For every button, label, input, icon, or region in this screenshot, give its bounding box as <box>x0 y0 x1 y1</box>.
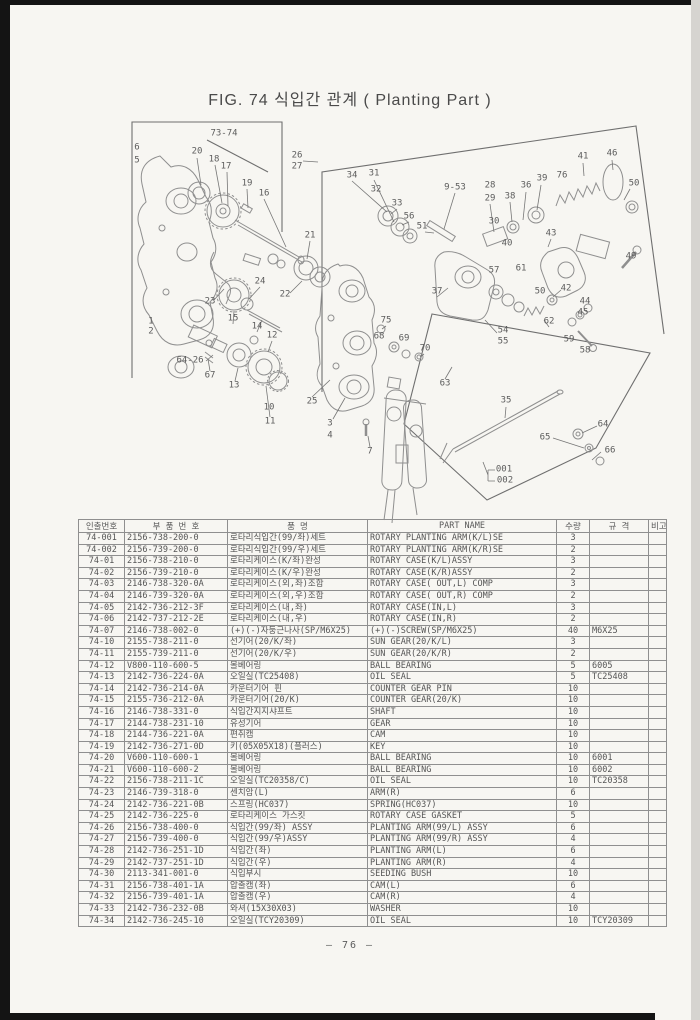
cell: 5 <box>557 672 590 684</box>
cell: GEAR <box>368 718 557 730</box>
cell: TCY20309 <box>590 915 649 927</box>
callout-label: 76 <box>557 172 568 181</box>
callout-label: 1 <box>148 318 153 327</box>
cell: ROTARY CASE( OUT,R) COMP <box>368 590 557 602</box>
callout-label: 10 <box>264 404 275 413</box>
cell: KEY <box>368 741 557 753</box>
cell: OIL SEAL <box>368 672 557 684</box>
cell: 74-22 <box>79 776 125 788</box>
cell: 6 <box>557 880 590 892</box>
cell: 로타리식입간(99/우)세트 <box>228 544 368 556</box>
cell: 6 <box>557 788 590 800</box>
callout-label: 45 <box>578 309 589 318</box>
cell <box>590 683 649 695</box>
table-row: 74-232146-739-318-0센치암(L)ARM(R)6 <box>79 788 667 800</box>
cell <box>590 706 649 718</box>
cell: 2 <box>557 590 590 602</box>
callout-label: 50 <box>535 288 546 297</box>
col-header: 규 격 <box>590 520 649 533</box>
cell: 로타리케이스(K/우)완성 <box>228 567 368 579</box>
cell: 2142-736-245-10 <box>125 915 228 927</box>
cell <box>649 857 667 869</box>
callout-label: 30 <box>489 218 500 227</box>
cell: 74-02 <box>79 567 125 579</box>
cell: 2156-739-210-0 <box>125 567 228 579</box>
cell: 74-29 <box>79 857 125 869</box>
callout-label: 62 <box>544 318 555 327</box>
callout-label: 6 <box>134 144 139 153</box>
cell <box>649 753 667 765</box>
callout-label: 31 <box>369 170 380 179</box>
cell: 74-01 <box>79 556 125 568</box>
cell: ROTARY CASE GASKET <box>368 811 557 823</box>
callout-label: 40 <box>502 240 513 249</box>
cell <box>649 637 667 649</box>
callout-label: 4 <box>327 432 332 441</box>
cell: SHAFT <box>368 706 557 718</box>
page-number: — 76 — <box>0 940 700 951</box>
cell: 로타리케이스(내,좌) <box>228 602 368 614</box>
table-row: 74-342142-736-245-10오일실(TCY20309)OIL SEA… <box>79 915 667 927</box>
cell: 10 <box>557 904 590 916</box>
cell: 10 <box>557 799 590 811</box>
callout-label: 21 <box>305 232 316 241</box>
callout-label: 34 <box>347 172 358 181</box>
cell <box>590 637 649 649</box>
cell: 2144-738-231-10 <box>125 718 228 730</box>
callout-label: 73-74 <box>210 130 237 139</box>
callout-label: 44 <box>580 298 591 307</box>
callout-label: 69 <box>399 335 410 344</box>
cell: 10 <box>557 764 590 776</box>
cell: 2142-736-212-3F <box>125 602 228 614</box>
cell: OIL SEAL <box>368 915 557 927</box>
cell: 2142-736-221-0B <box>125 799 228 811</box>
cell: 74-19 <box>79 741 125 753</box>
table-row: 74-21V600-110-600-2볼베어링BALL BEARING10600… <box>79 764 667 776</box>
cell: 2 <box>557 544 590 556</box>
cell <box>649 590 667 602</box>
cell: PLANTING ARM(L) <box>368 846 557 858</box>
table-row: 74-0012156-738-200-0로타리식입간(99/좌)세트ROTARY… <box>79 533 667 545</box>
cell: 10 <box>557 741 590 753</box>
table-header-row: 인출번호부 품 번 호품 명PART NAME수량규 격비고 <box>79 520 667 533</box>
cell: 74-23 <box>79 788 125 800</box>
cell: 74-04 <box>79 590 125 602</box>
cell <box>649 672 667 684</box>
cell: BALL BEARING <box>368 753 557 765</box>
cell: PLANTING ARM(99/R) ASSY <box>368 834 557 846</box>
cell: 로타리식입간(99/좌)세트 <box>228 533 368 545</box>
cell: V800-110-600-5 <box>125 660 228 672</box>
cell <box>649 834 667 846</box>
cell: 4 <box>557 857 590 869</box>
table-row: 74-312156-738-401-1A압출캠(좌)CAM(L)6 <box>79 880 667 892</box>
cell: 74-34 <box>79 915 125 927</box>
cell: 74-28 <box>79 846 125 858</box>
cell: 편취캠 <box>228 730 368 742</box>
cell <box>590 602 649 614</box>
cell: 3 <box>557 637 590 649</box>
cell: V600-110-600-2 <box>125 764 228 776</box>
callout-label: 28 <box>485 182 496 191</box>
cell <box>590 822 649 834</box>
callout-label: 61 <box>516 265 527 274</box>
cell: 압출캠(우) <box>228 892 368 904</box>
cell: V600-110-600-1 <box>125 753 228 765</box>
table-row: 74-12V800-110-600-5볼베어링BALL BEARING56005 <box>79 660 667 672</box>
cell: 4 <box>557 834 590 846</box>
cell: 식입간(우) <box>228 857 368 869</box>
cell: 10 <box>557 776 590 788</box>
cell: 2113-341-001-0 <box>125 869 228 881</box>
parts-table: 인출번호부 품 번 호품 명PART NAME수량규 격비고 74-001215… <box>78 519 667 927</box>
table-row: 74-272156-739-400-0식입간(99/우)ASSYPLANTING… <box>79 834 667 846</box>
cell <box>649 706 667 718</box>
cell: OIL SEAL <box>368 776 557 788</box>
cell: 5 <box>557 811 590 823</box>
callout-label: 75 <box>381 317 392 326</box>
cell: 74-25 <box>79 811 125 823</box>
cell: 로타리케이스(외,좌)조합 <box>228 579 368 591</box>
cell: 2155-738-211-0 <box>125 637 228 649</box>
callout-label: 23 <box>205 298 216 307</box>
callout-label: 29 <box>485 195 496 204</box>
cell: PLANTING ARM(R) <box>368 857 557 869</box>
callout-label: 38 <box>505 193 516 202</box>
table-row: 74-222156-738-211-1C오일실(TC20358/C)OIL SE… <box>79 776 667 788</box>
cell: 키(05X05X18)(플러스) <box>228 741 368 753</box>
cell <box>590 614 649 626</box>
cell: 3 <box>557 533 590 545</box>
callout-label: 5 <box>134 157 139 166</box>
callout-label: 42 <box>561 285 572 294</box>
cell: (+)(-)SCREW(SP/M6X25) <box>368 625 557 637</box>
cell: SUN GEAR(20/K/L) <box>368 637 557 649</box>
table-row: 74-132142-736-224-0A오일실(TC25408)OIL SEAL… <box>79 672 667 684</box>
cell: ROTARY CASE(IN,L) <box>368 602 557 614</box>
cell: 74-18 <box>79 730 125 742</box>
callout-label: 15 <box>228 315 239 324</box>
cell: 10 <box>557 683 590 695</box>
cell <box>590 869 649 881</box>
cell: 10 <box>557 753 590 765</box>
cell: PLANTING ARM(99/L) ASSY <box>368 822 557 834</box>
cell: 2155-739-211-0 <box>125 648 228 660</box>
cell <box>649 602 667 614</box>
cell: 10 <box>557 730 590 742</box>
cell: 2 <box>557 614 590 626</box>
cell: ARM(R) <box>368 788 557 800</box>
cell: COUNTER GEAR(20/K) <box>368 695 557 707</box>
cell <box>590 846 649 858</box>
callout-label: 58 <box>580 347 591 356</box>
cell: 선기어(20/K/우) <box>228 648 368 660</box>
callout-label: 56 <box>404 213 415 222</box>
cell <box>649 695 667 707</box>
cell: 2156-738-400-0 <box>125 822 228 834</box>
cell: 2144-736-221-0A <box>125 730 228 742</box>
cell <box>649 614 667 626</box>
callout-label: 37 <box>432 288 443 297</box>
cell: 2146-739-320-0A <box>125 590 228 602</box>
callout-label: 68 <box>374 333 385 342</box>
cell: 식입간(99/좌) ASSY <box>228 822 368 834</box>
cell <box>590 556 649 568</box>
cell <box>590 544 649 556</box>
cell: 오일실(TC20358/C) <box>228 776 368 788</box>
cell: 74-03 <box>79 579 125 591</box>
callout-label: 13 <box>229 382 240 391</box>
callout-label: 20 <box>192 148 203 157</box>
callout-label: 51 <box>417 223 428 232</box>
cell: 로타리케이스 가스킷 <box>228 811 368 823</box>
cell <box>649 788 667 800</box>
cell: 카운터기어 핀 <box>228 683 368 695</box>
table-row: 74-062142-737-212-2E로타리케이스(내,우)ROTARY CA… <box>79 614 667 626</box>
cell: 74-21 <box>79 764 125 776</box>
cell: 74-05 <box>79 602 125 614</box>
cell <box>649 718 667 730</box>
callout-label: 50 <box>629 180 640 189</box>
callout-label: 22 <box>280 291 291 300</box>
table-row: 74-052142-736-212-3F로타리케이스(내,좌)ROTARY CA… <box>79 602 667 614</box>
table-row: 74-292142-737-251-1D식입간(우)PLANTING ARM(R… <box>79 857 667 869</box>
table-row: 74-182144-736-221-0A편취캠CAM10 <box>79 730 667 742</box>
cell: 카운터기어(20/K) <box>228 695 368 707</box>
cell <box>590 741 649 753</box>
cell: 74-30 <box>79 869 125 881</box>
table-row: 74-152155-736-212-0A카운터기어(20/K)COUNTER G… <box>79 695 667 707</box>
cell: M6X25 <box>590 625 649 637</box>
cell <box>649 764 667 776</box>
cell <box>649 869 667 881</box>
cell: COUNTER GEAR PIN <box>368 683 557 695</box>
cell <box>590 834 649 846</box>
cell: 식입간지지샤프트 <box>228 706 368 718</box>
cell: 4 <box>557 892 590 904</box>
cell <box>590 904 649 916</box>
cell: 3 <box>557 579 590 591</box>
callout-label: 7 <box>367 448 372 457</box>
callout-label: 12 <box>267 332 278 341</box>
cell: 6001 <box>590 753 649 765</box>
cell: 74-12 <box>79 660 125 672</box>
cell: 10 <box>557 869 590 881</box>
cell: 2156-739-400-0 <box>125 834 228 846</box>
cell: ROTARY CASE( OUT,L) COMP <box>368 579 557 591</box>
cell: 74-001 <box>79 533 125 545</box>
cell: 로타리케이스(내,우) <box>228 614 368 626</box>
cell: 압출캠(좌) <box>228 880 368 892</box>
cell <box>649 544 667 556</box>
cell: 10 <box>557 706 590 718</box>
callout-label: 3 <box>327 420 332 429</box>
cell <box>649 880 667 892</box>
cell: 볼베어링 <box>228 660 368 672</box>
cell: BALL BEARING <box>368 660 557 672</box>
callout-label: 17 <box>221 163 232 172</box>
callout-label: 18 <box>209 156 220 165</box>
callout-label: 64-26 <box>176 357 203 366</box>
callout-label: 41 <box>578 153 589 162</box>
cell: 식입부시 <box>228 869 368 881</box>
cell <box>590 718 649 730</box>
cell: 2142-736-232-0B <box>125 904 228 916</box>
table-row: 74-322156-739-401-1A압출캠(우)CAM(R)4 <box>79 892 667 904</box>
cell <box>590 892 649 904</box>
callout-label: 32 <box>371 186 382 195</box>
cell <box>649 683 667 695</box>
cell: 2 <box>557 567 590 579</box>
cell <box>649 811 667 823</box>
col-header: 부 품 번 호 <box>125 520 228 533</box>
table-body: 74-0012156-738-200-0로타리식입간(99/좌)세트ROTARY… <box>79 533 667 927</box>
callout-label: 59 <box>564 336 575 345</box>
cell <box>649 799 667 811</box>
cell: 74-14 <box>79 683 125 695</box>
cell <box>649 625 667 637</box>
table-row: 74-072146-738-002-0(+)(-)자둥근나사(SP/M6X25)… <box>79 625 667 637</box>
cell: 74-07 <box>79 625 125 637</box>
exploded-diagram: 73-7465201817191626273431329-53282938363… <box>0 108 700 523</box>
table-row: 74-162146-738-331-0식입간지지샤프트SHAFT10 <box>79 706 667 718</box>
table-row: 74-282142-736-251-1D식입간(좌)PLANTING ARM(L… <box>79 846 667 858</box>
cell <box>649 741 667 753</box>
callout-label: 9-53 <box>444 184 466 193</box>
cell <box>590 533 649 545</box>
cell: 2 <box>557 648 590 660</box>
callout-label: 27 <box>292 163 303 172</box>
callout-label: 63 <box>440 380 451 389</box>
cell: 74-27 <box>79 834 125 846</box>
callout-label: 35 <box>501 397 512 406</box>
table-row: 74-332142-736-232-0B와셔(15X30X03)WASHER10 <box>79 904 667 916</box>
callout-label: 2 <box>148 328 153 337</box>
cell: 볼베어링 <box>228 764 368 776</box>
table-row: 74-242142-736-221-0B스프링(HC037)SPRING(HC0… <box>79 799 667 811</box>
cell <box>649 776 667 788</box>
cell <box>590 799 649 811</box>
cell: WASHER <box>368 904 557 916</box>
cell: 오일실(TC25408) <box>228 672 368 684</box>
callout-label: 70 <box>420 345 431 354</box>
cell: SEEDING BUSH <box>368 869 557 881</box>
cell: 74-17 <box>79 718 125 730</box>
callout-label: 46 <box>607 150 618 159</box>
callout-label: 66 <box>605 447 616 456</box>
cell: 2142-736-271-0D <box>125 741 228 753</box>
cell: ROTARY CASE(K/R)ASSY <box>368 567 557 579</box>
table-row: 74-012156-738-210-0로타리케이스(K/좌)완성ROTARY C… <box>79 556 667 568</box>
cell: 6002 <box>590 764 649 776</box>
cell <box>590 590 649 602</box>
table-row: 74-102155-738-211-0선기어(20/K/좌)SUN GEAR(2… <box>79 637 667 649</box>
col-header: 품 명 <box>228 520 368 533</box>
cell: 2156-738-401-1A <box>125 880 228 892</box>
cell: 10 <box>557 695 590 707</box>
cell: ROTARY CASE(IN,R) <box>368 614 557 626</box>
cell <box>649 846 667 858</box>
cell: 6 <box>557 846 590 858</box>
cell: 74-26 <box>79 822 125 834</box>
cell: SPRING(HC037) <box>368 799 557 811</box>
cell <box>590 730 649 742</box>
cell: 2146-738-331-0 <box>125 706 228 718</box>
callout-label: 14 <box>252 323 263 332</box>
cell <box>590 857 649 869</box>
cell: 선기어(20/K/좌) <box>228 637 368 649</box>
cell <box>649 567 667 579</box>
cell: 74-31 <box>79 880 125 892</box>
cell: CAM(L) <box>368 880 557 892</box>
table-row: 74-252142-736-225-0로타리케이스 가스킷ROTARY CASE… <box>79 811 667 823</box>
cell: 2142-736-251-1D <box>125 846 228 858</box>
table-row: 74-302113-341-001-0식입부시SEEDING BUSH10 <box>79 869 667 881</box>
cell: SUN GEAR(20/K/R) <box>368 648 557 660</box>
cell: 2156-739-401-1A <box>125 892 228 904</box>
cell <box>649 904 667 916</box>
cell: (+)(-)자둥근나사(SP/M6X25) <box>228 625 368 637</box>
cell: 74-24 <box>79 799 125 811</box>
cell: 볼베어링 <box>228 753 368 765</box>
cell: ROTARY CASE(K/L)ASSY <box>368 556 557 568</box>
cell: 식입간(좌) <box>228 846 368 858</box>
cell <box>649 730 667 742</box>
callout-label: 54 <box>498 327 509 336</box>
cell: 3 <box>557 556 590 568</box>
callout-label: 64 <box>598 421 609 430</box>
cell <box>649 648 667 660</box>
callout-label: 36 <box>521 182 532 191</box>
cell: 74-33 <box>79 904 125 916</box>
cell: 2156-738-211-1C <box>125 776 228 788</box>
cell: 2156-738-200-0 <box>125 533 228 545</box>
cell: ROTARY PLANTING ARM(K/L)SE <box>368 533 557 545</box>
cell: 2146-739-318-0 <box>125 788 228 800</box>
cell: 센치암(L) <box>228 788 368 800</box>
table-row: 74-032146-738-320-0A로타리케이스(외,좌)조합ROTARY … <box>79 579 667 591</box>
table-row: 74-262156-738-400-0식입간(99/좌) ASSYPLANTIN… <box>79 822 667 834</box>
cell: 2142-736-225-0 <box>125 811 228 823</box>
cell: 와셔(15X30X03) <box>228 904 368 916</box>
callout-label: 39 <box>537 175 548 184</box>
cell: 74-15 <box>79 695 125 707</box>
cell: 유성기어 <box>228 718 368 730</box>
cell: 10 <box>557 915 590 927</box>
cell: 식입간(99/우)ASSY <box>228 834 368 846</box>
cell <box>649 822 667 834</box>
cell: 74-11 <box>79 648 125 660</box>
cell: 74-002 <box>79 544 125 556</box>
callout-label: 67 <box>205 372 216 381</box>
callout-layer: 73-7465201817191626273431329-53282938363… <box>0 0 700 523</box>
cell <box>649 660 667 672</box>
callout-label: 26 <box>292 152 303 161</box>
cell: 6 <box>557 822 590 834</box>
callout-label: 24 <box>255 278 266 287</box>
col-header: 비고 <box>649 520 667 533</box>
cell: 2156-739-200-0 <box>125 544 228 556</box>
cell <box>649 892 667 904</box>
cell <box>590 579 649 591</box>
table-row: 74-112155-739-211-0선기어(20/K/우)SUN GEAR(2… <box>79 648 667 660</box>
cell <box>590 567 649 579</box>
cell: 6005 <box>590 660 649 672</box>
table-row: 74-042146-739-320-0A로타리케이스(외,우)조합ROTARY … <box>79 590 667 602</box>
cell: 2142-736-224-0A <box>125 672 228 684</box>
cell: CAM(R) <box>368 892 557 904</box>
